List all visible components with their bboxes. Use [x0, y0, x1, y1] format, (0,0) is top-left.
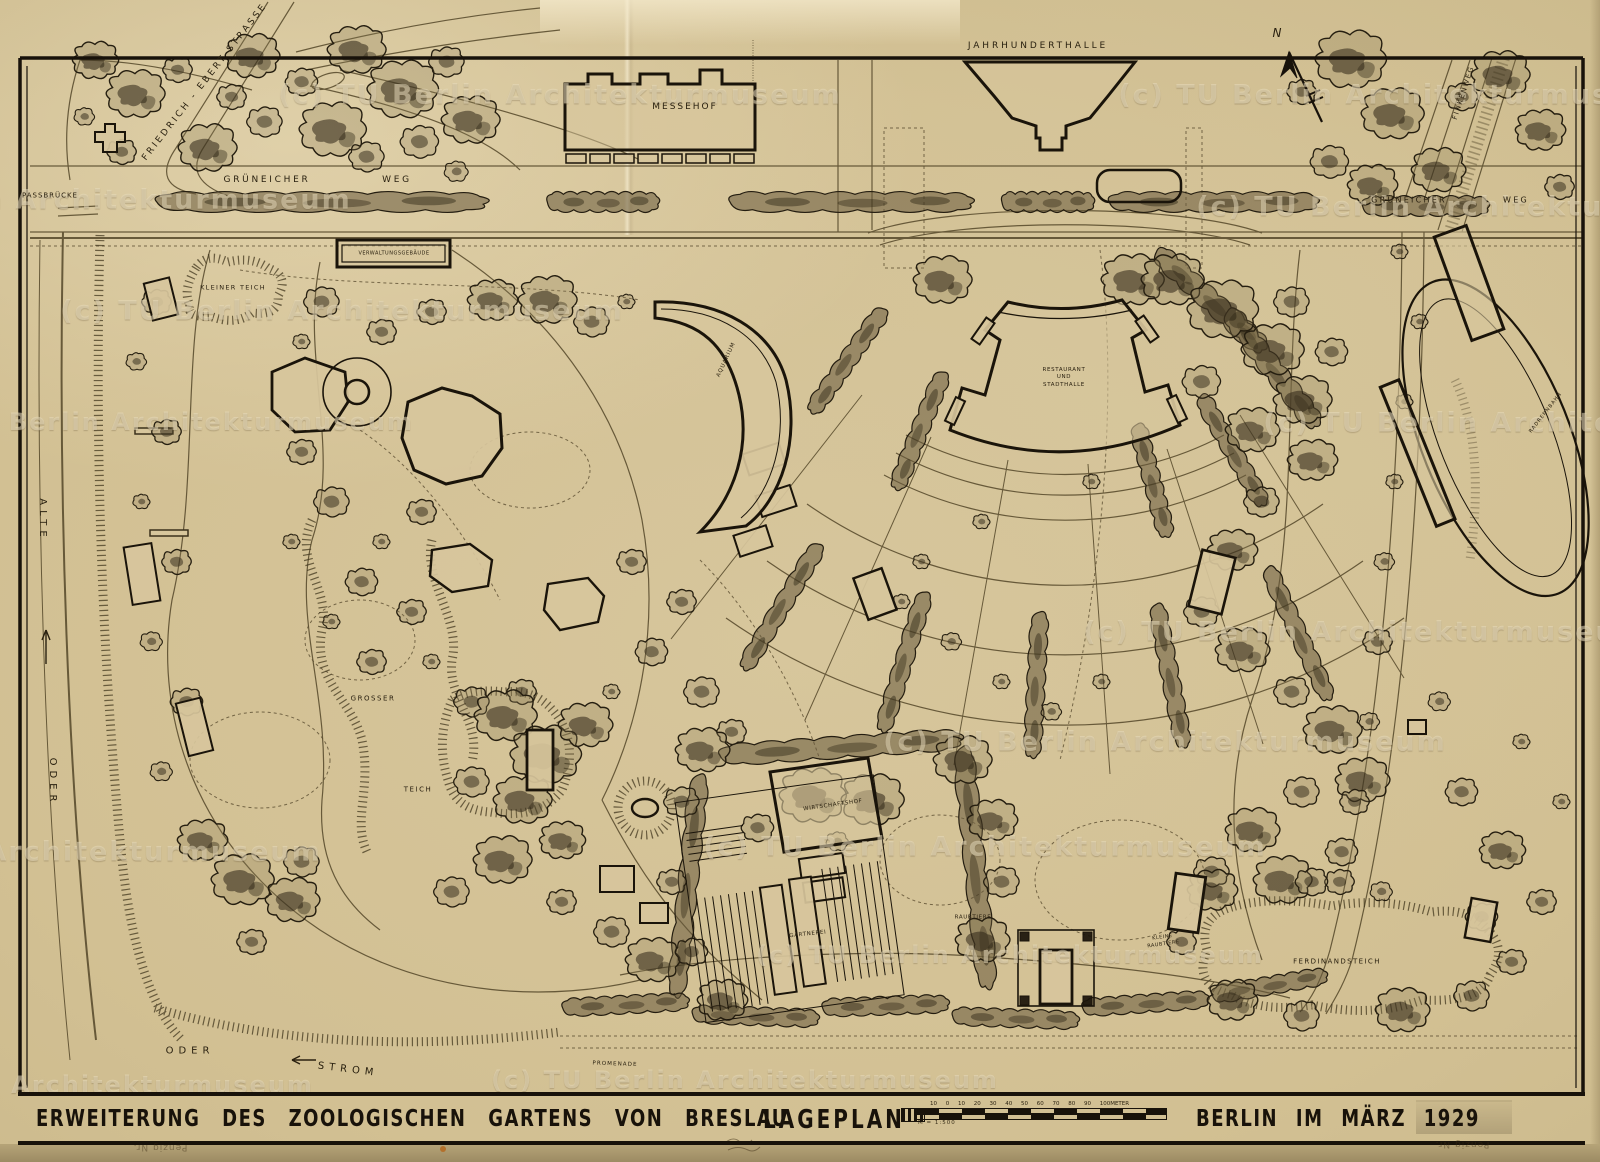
- label-teich: TEICH: [404, 785, 433, 794]
- label-restaurant-line3: STADTHALLE: [1043, 382, 1086, 389]
- plan-title: ERWEITERUNG DES ZOOLOGISCHEN GARTENS VON…: [36, 1105, 788, 1132]
- label-oder-upper: ODER: [45, 758, 59, 807]
- scale-note: M = 1:500: [916, 1120, 1184, 1126]
- scale-bar-row2: [916, 1114, 1166, 1119]
- label-restaurant-stadthalle: RESTAURANT UND STADTHALLE: [1043, 367, 1086, 389]
- label-ferdinandsteich: FERDINANDSTEICH: [1293, 957, 1381, 966]
- label-weg-left: WEG: [382, 174, 412, 186]
- label-grueneicher-weg-right: GRÜNEICHER: [1371, 196, 1447, 207]
- label-raubtiere: RAUBTIERE: [955, 914, 992, 921]
- label-weg-right: WEG: [1503, 196, 1529, 207]
- printer-stamp-right: Penzig Nr.: [1435, 1139, 1490, 1149]
- label-grueneicher-weg-left: GRÜNEICHER: [224, 174, 311, 186]
- label-promenade: PROMENADE: [592, 1061, 637, 1070]
- label-alte: ALTE: [35, 498, 49, 541]
- label-passbruecke: PASSBRÜCKE: [22, 191, 78, 200]
- scale-bar: 10 0 10 20 30 40 50 60 70 80 90 100METER…: [916, 1101, 1184, 1126]
- scanned-site-plan: (c) TU Berlin Architekturmuseum (c) TU B…: [0, 0, 1600, 1162]
- printer-stamp-left: Penzig Nr.: [133, 1142, 188, 1152]
- label-grosser: GROSSER: [351, 694, 396, 703]
- archive-stamp: [1416, 1100, 1512, 1134]
- label-restaurant-line1: RESTAURANT: [1043, 367, 1086, 374]
- scale-ticks: 10 0 10 20 30 40 50 60 70 80 90 100METER: [916, 1101, 1184, 1107]
- label-oder-lower: ODER: [166, 1044, 215, 1058]
- label-verwaltungsgebaeude: VERWALTUNGSGEBÄUDE: [358, 251, 429, 258]
- label-restaurant-line2: UND: [1043, 374, 1086, 381]
- label-kleiner-teich: KLEINER TEICH: [200, 284, 266, 293]
- scale-check-block: [902, 1109, 924, 1121]
- label-messehof: MESSEHOF: [652, 101, 717, 113]
- plan-type: LAGEPLAN: [763, 1103, 905, 1134]
- label-jahrhunderthalle: JAHRHUNDERTHALLE: [968, 40, 1108, 52]
- compass-north-label: N: [1273, 25, 1282, 41]
- title-cartouche: ERWEITERUNG DES ZOOLOGISCHEN GARTENS VON…: [18, 1092, 1585, 1145]
